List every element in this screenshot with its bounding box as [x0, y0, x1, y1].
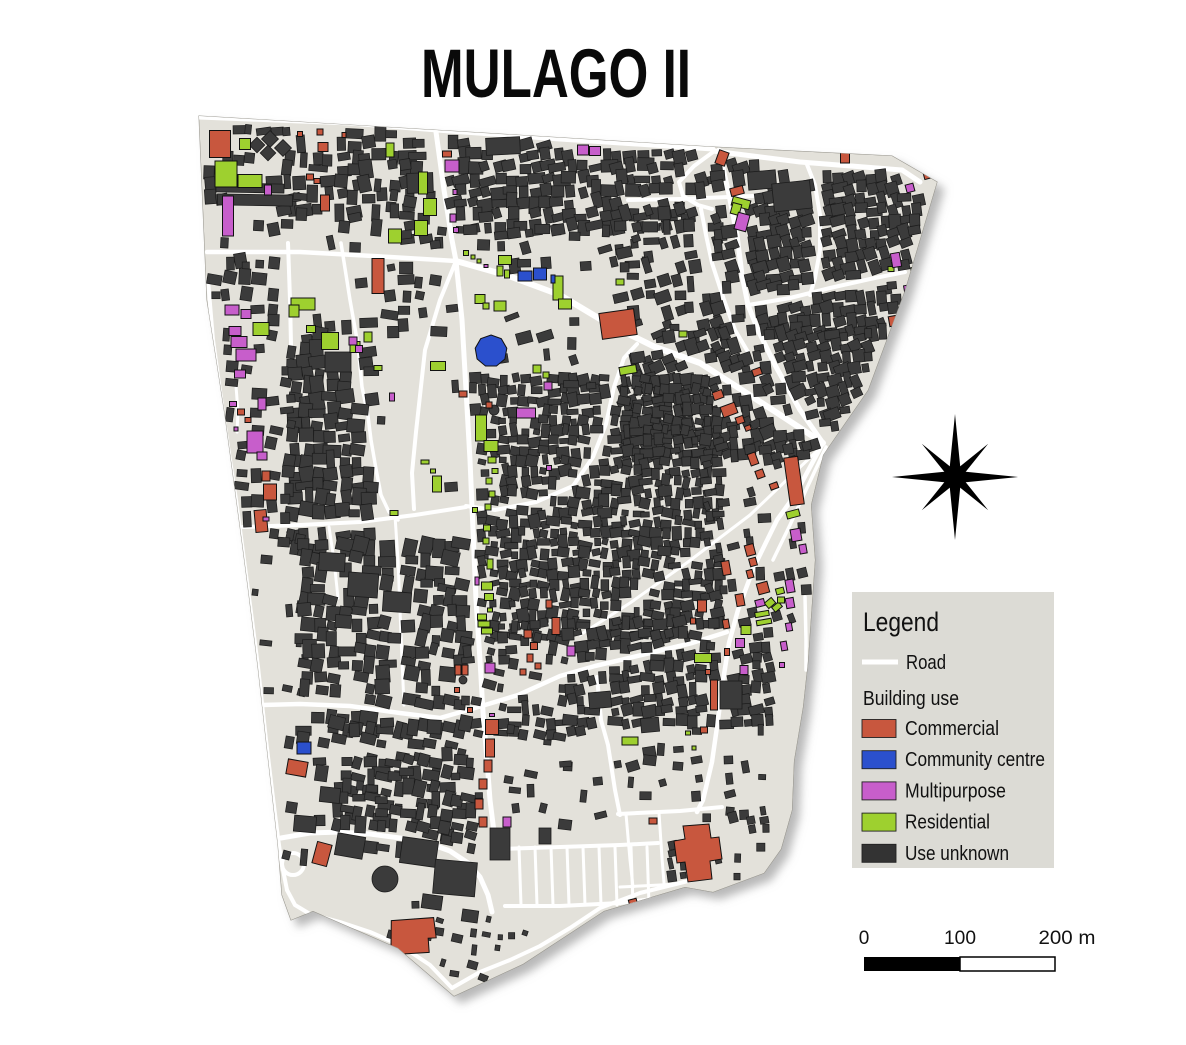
- svg-text:0: 0: [859, 928, 870, 949]
- svg-text:Legend: Legend: [863, 607, 939, 637]
- svg-text:200 m: 200 m: [1039, 928, 1096, 949]
- svg-text:Residential: Residential: [905, 812, 990, 834]
- svg-text:Use unknown: Use unknown: [905, 843, 1009, 865]
- svg-text:Community centre: Community centre: [905, 749, 1045, 771]
- svg-text:Multipurpose: Multipurpose: [905, 780, 1006, 802]
- svg-text:Road: Road: [906, 652, 946, 674]
- svg-text:MULAGO II: MULAGO II: [421, 35, 691, 112]
- svg-text:100: 100: [944, 928, 976, 949]
- svg-text:Building use: Building use: [863, 688, 959, 710]
- svg-text:Commercial: Commercial: [905, 718, 999, 740]
